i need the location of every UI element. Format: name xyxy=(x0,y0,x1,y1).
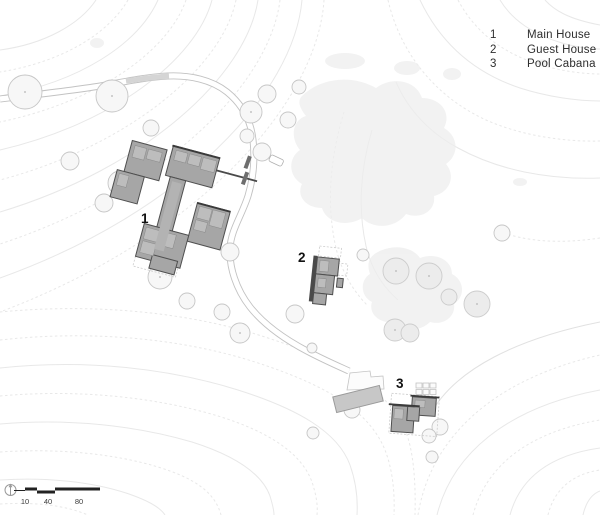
driveway-bridge xyxy=(126,76,169,81)
tree-canopy xyxy=(401,324,419,342)
parked-car xyxy=(268,154,284,166)
tree-canopy xyxy=(307,427,319,439)
tree-canopy xyxy=(292,80,306,94)
building-label-main-house: 1 xyxy=(141,211,149,226)
scale-label-10: 10 xyxy=(21,497,29,506)
pergola-grid xyxy=(416,383,436,395)
tree-canopy xyxy=(441,289,457,305)
tree-canopy xyxy=(426,451,438,463)
tree-canopy xyxy=(179,293,195,309)
legend-label: Guest House xyxy=(527,43,596,58)
guest-house-footprint xyxy=(309,246,350,307)
scale-bar: 10 40 80 xyxy=(14,488,100,507)
legend-number: 1 xyxy=(490,28,527,43)
tree-canopy xyxy=(307,343,317,353)
tree-canopy xyxy=(143,120,159,136)
tree-canopy xyxy=(214,304,230,320)
legend-item-pool-cabana: 3 Pool Cabana xyxy=(490,57,596,72)
tree-canopy xyxy=(221,243,239,261)
tree-canopy xyxy=(258,85,276,103)
building-label-guest-house: 2 xyxy=(298,250,306,265)
tree-canopy xyxy=(61,152,79,170)
tree-canopy xyxy=(240,129,254,143)
site-plan-page: 10 40 80 1 Main House 2 Guest House 3 Po… xyxy=(0,0,600,515)
scale-label-80: 80 xyxy=(75,497,83,506)
legend-item-guest-house: 2 Guest House xyxy=(490,43,596,58)
building-label-pool-cabana: 3 xyxy=(396,376,404,391)
legend-label: Pool Cabana xyxy=(527,57,596,72)
scale-label-40: 40 xyxy=(44,497,52,506)
tree-canopy xyxy=(357,249,369,261)
legend-number: 2 xyxy=(490,43,527,58)
legend-label: Main House xyxy=(527,28,590,43)
tree-canopy xyxy=(286,305,304,323)
legend-item-main-house: 1 Main House xyxy=(490,28,596,43)
tree-canopy xyxy=(494,225,510,241)
legend: 1 Main House 2 Guest House 3 Pool Cabana xyxy=(490,28,596,72)
tree-canopy xyxy=(280,112,296,128)
legend-number: 3 xyxy=(490,57,527,72)
north-arrow-icon xyxy=(5,484,16,496)
main-house-footprint xyxy=(94,133,260,291)
tree-canopy xyxy=(253,143,271,161)
